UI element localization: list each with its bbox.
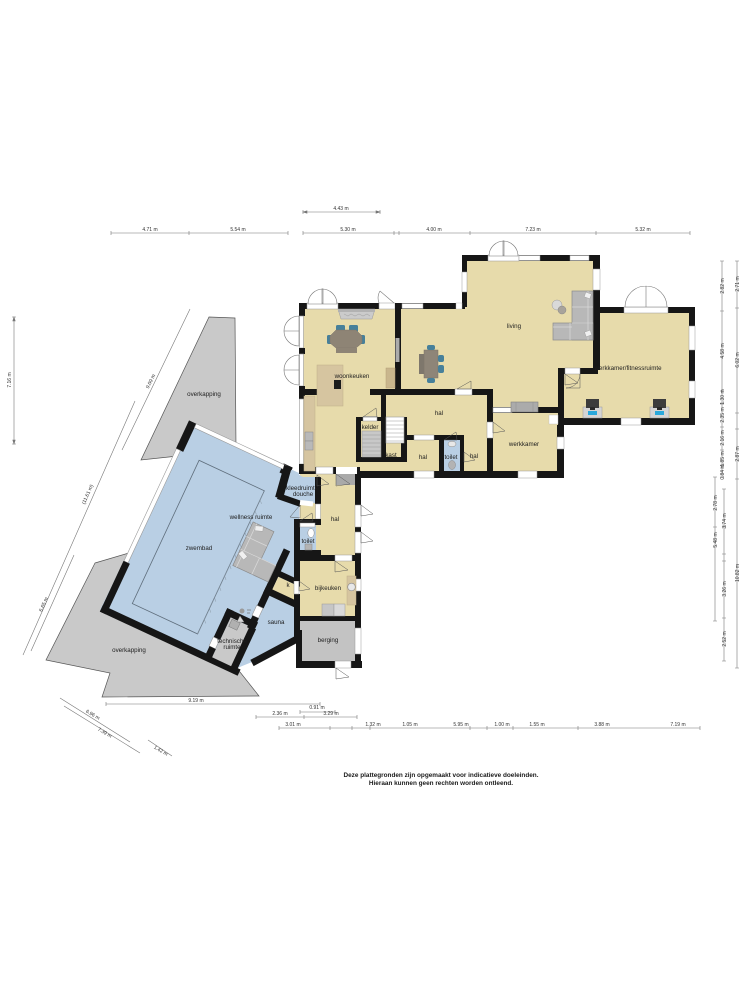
svg-text:overkapping: overkapping xyxy=(112,647,146,654)
svg-text:1.05 m: 1.05 m xyxy=(402,722,417,728)
svg-text:3.74 m: 3.74 m xyxy=(722,513,728,528)
svg-text:3.26 m: 3.26 m xyxy=(722,581,728,596)
svg-text:hal: hal xyxy=(419,454,427,461)
svg-text:4.58 m: 4.58 m xyxy=(720,343,726,358)
svg-text:overkapping: overkapping xyxy=(187,391,221,398)
svg-text:1.55 m: 1.55 m xyxy=(529,722,544,728)
svg-text:9.19 m: 9.19 m xyxy=(188,698,203,704)
svg-text:4.00 m: 4.00 m xyxy=(426,227,441,233)
svg-text:0.91 m: 0.91 m xyxy=(309,705,324,711)
svg-text:4.43 m: 4.43 m xyxy=(333,206,348,212)
svg-text:2.52 m: 2.52 m xyxy=(722,631,728,646)
svg-text:bijkeuken: bijkeuken xyxy=(315,585,342,592)
svg-text:7.16 m: 7.16 m xyxy=(7,372,13,387)
svg-text:living: living xyxy=(507,323,522,330)
svg-text:2.36 m: 2.36 m xyxy=(272,711,287,717)
svg-text:2.16 m: 2.16 m xyxy=(720,430,726,445)
svg-text:4.71 m: 4.71 m xyxy=(142,227,157,233)
svg-text:woonkeuken: woonkeuken xyxy=(334,373,370,380)
svg-text:hal: hal xyxy=(435,410,443,417)
svg-text:zwembad: zwembad xyxy=(186,545,213,552)
svg-text:kast: kast xyxy=(385,452,397,459)
svg-text:berging: berging xyxy=(318,637,339,644)
svg-text:5.32 m: 5.32 m xyxy=(635,227,650,233)
svg-text:ruimte: ruimte xyxy=(223,644,241,651)
svg-text:5.30 m: 5.30 m xyxy=(340,227,355,233)
svg-text:hal: hal xyxy=(470,453,478,460)
svg-text:2.82 m: 2.82 m xyxy=(720,278,726,293)
svg-text:5.48 m: 5.48 m xyxy=(713,532,719,547)
svg-text:7.19 m: 7.19 m xyxy=(670,722,685,728)
svg-text:1.30 m: 1.30 m xyxy=(720,389,726,404)
svg-text:Deze plattegronden zijn opgema: Deze plattegronden zijn opgemaakt voor i… xyxy=(344,772,539,779)
svg-text:7.23 m: 7.23 m xyxy=(525,227,540,233)
svg-text:wellness ruimte: wellness ruimte xyxy=(229,514,273,521)
svg-text:2.71 m: 2.71 m xyxy=(735,276,741,291)
svg-text:toilet: toilet xyxy=(444,454,457,461)
svg-text:sauna: sauna xyxy=(268,619,285,626)
svg-text:2.78 m: 2.78 m xyxy=(713,495,719,510)
svg-text:Hieraan kunnen geen rechten wo: Hieraan kunnen geen rechten worden ontle… xyxy=(369,780,513,787)
svg-text:werkkamer/fitnessruimte: werkkamer/fitnessruimte xyxy=(593,365,662,372)
svg-text:6.02 m: 6.02 m xyxy=(735,352,741,367)
svg-text:2.35 m: 2.35 m xyxy=(720,407,726,422)
svg-text:3.29 m: 3.29 m xyxy=(323,711,338,717)
svg-text:kelder: kelder xyxy=(362,424,379,431)
svg-text:3.88 m: 3.88 m xyxy=(594,722,609,728)
svg-text:5.95 m: 5.95 m xyxy=(453,722,468,728)
svg-text:2.87 m: 2.87 m xyxy=(735,446,741,461)
svg-text:hal: hal xyxy=(331,516,339,523)
svg-text:0.84 m: 0.84 m xyxy=(720,464,726,479)
svg-text:3.01 m: 3.01 m xyxy=(285,722,300,728)
svg-text:werkkamer: werkkamer xyxy=(508,441,539,448)
svg-text:douche: douche xyxy=(293,491,314,498)
svg-text:10.82 m: 10.82 m xyxy=(735,564,741,582)
svg-text:1.32 m: 1.32 m xyxy=(365,722,380,728)
svg-text:toilet: toilet xyxy=(301,538,314,545)
svg-text:5.54 m: 5.54 m xyxy=(230,227,245,233)
svg-text:1.00 m: 1.00 m xyxy=(494,722,509,728)
